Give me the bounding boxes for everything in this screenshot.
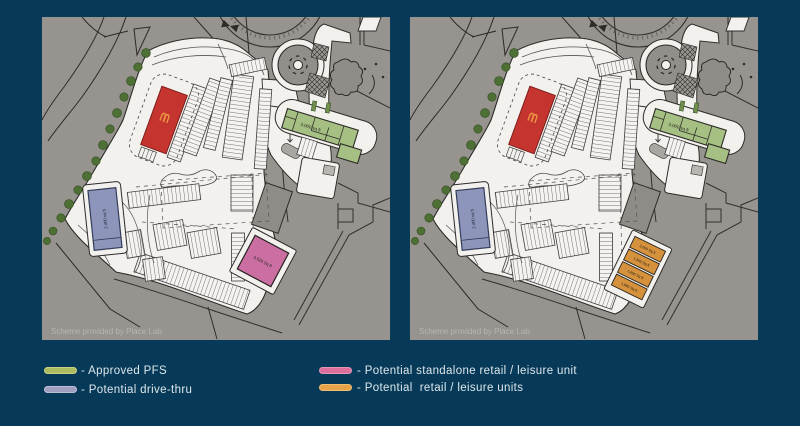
svg-text:Scheme provided by Place Lab.: Scheme provided by Place Lab. [51, 327, 164, 336]
